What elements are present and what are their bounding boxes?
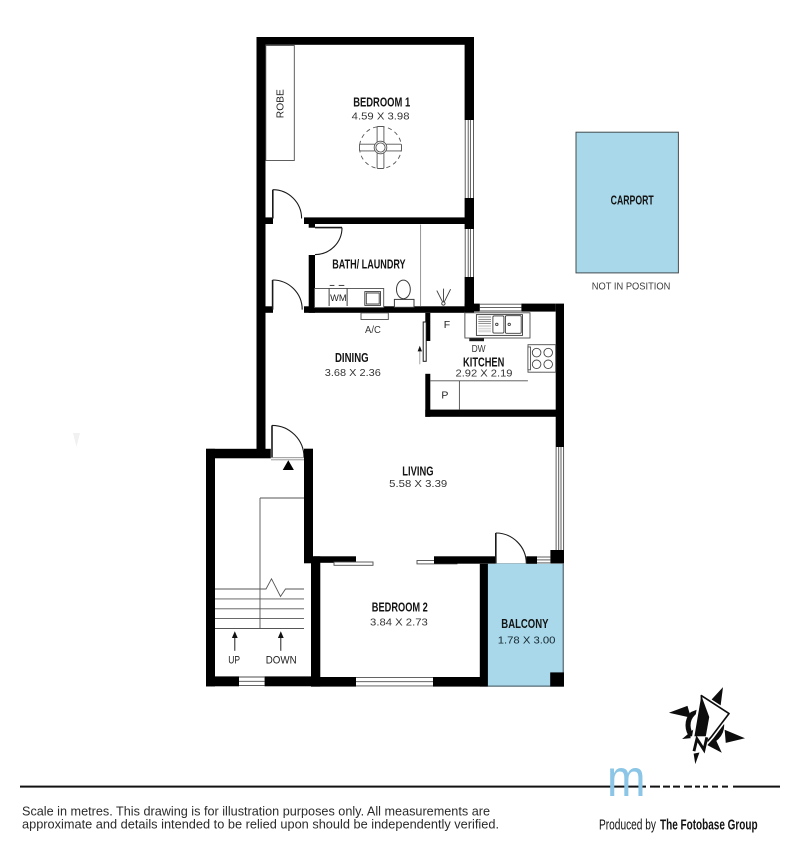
svg-text:DW: DW xyxy=(472,344,486,355)
svg-text:1.78 X 3.00: 1.78 X 3.00 xyxy=(498,635,556,646)
svg-text:BEDROOM 2: BEDROOM 2 xyxy=(372,600,428,615)
svg-text:BEDROOM 1: BEDROOM 1 xyxy=(353,94,410,109)
svg-text:P: P xyxy=(441,389,448,401)
svg-text:3.68 X 2.36: 3.68 X 2.36 xyxy=(325,368,381,379)
svg-text:BALCONY: BALCONY xyxy=(501,617,549,631)
svg-text:Produced by: Produced by xyxy=(599,818,657,834)
svg-text:LIVING: LIVING xyxy=(402,463,433,478)
svg-text:CARPORT: CARPORT xyxy=(611,193,654,207)
svg-text:ROBE: ROBE xyxy=(276,89,287,118)
svg-text:approximate and details intend: approximate and details intended to be r… xyxy=(22,816,499,831)
svg-text:DINING: DINING xyxy=(335,350,369,365)
svg-text:A/C: A/C xyxy=(365,325,381,336)
svg-text:WM: WM xyxy=(330,292,347,303)
svg-text:3.84 X 2.73: 3.84 X 2.73 xyxy=(370,618,428,629)
svg-text:DOWN: DOWN xyxy=(266,654,297,666)
svg-text:F: F xyxy=(444,319,450,331)
svg-text:BATH/ LAUNDRY: BATH/ LAUNDRY xyxy=(332,257,406,272)
svg-text:4.59 X 3.98: 4.59 X 3.98 xyxy=(352,111,410,122)
svg-text:5.58 X 3.39: 5.58 X 3.39 xyxy=(389,479,447,490)
svg-text:2.92 X 2.19: 2.92 X 2.19 xyxy=(456,368,513,379)
svg-text:KITCHEN: KITCHEN xyxy=(463,354,504,369)
svg-text:m: m xyxy=(607,750,646,808)
svg-text:NOT IN POSITION: NOT IN POSITION xyxy=(592,281,671,292)
svg-text:UP: UP xyxy=(228,654,240,666)
svg-text:The Fotobase Group: The Fotobase Group xyxy=(660,818,758,834)
